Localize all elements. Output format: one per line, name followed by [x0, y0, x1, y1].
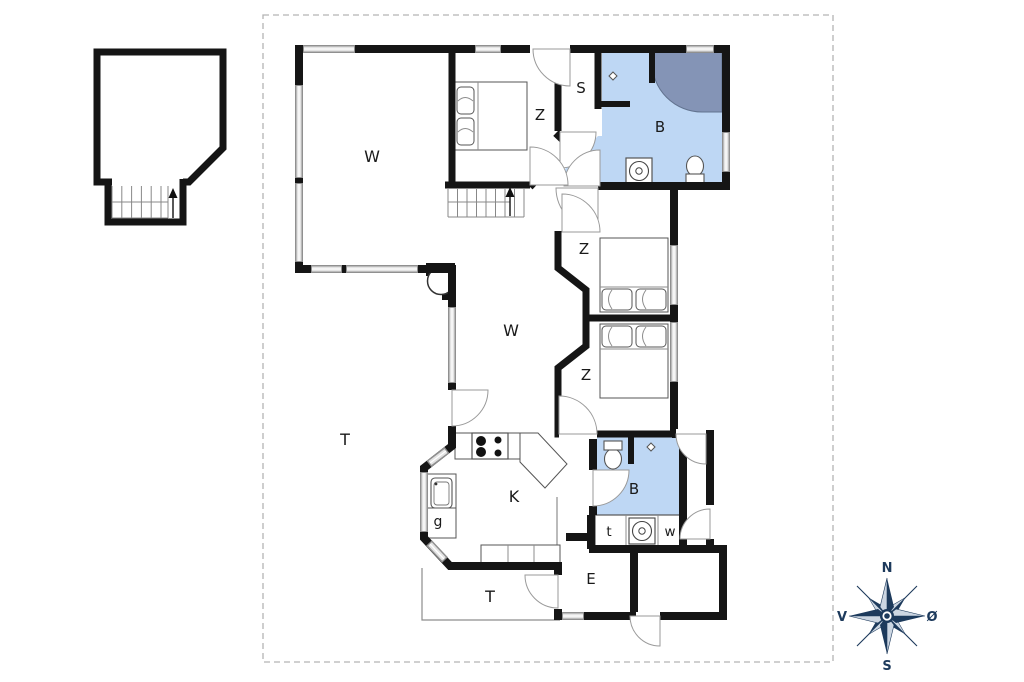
- label-bedroom-middle: Z: [579, 240, 589, 258]
- main-stairs: [448, 187, 524, 217]
- door-bedroom-lower: [559, 396, 597, 434]
- door-top-entrance: [533, 49, 570, 86]
- label-terrace-west: T: [339, 430, 350, 449]
- label-entry: E: [586, 570, 595, 588]
- label-room-w: w: [664, 524, 675, 540]
- label-terrace-south: T: [484, 587, 495, 606]
- label-living-room: W: [364, 147, 380, 166]
- floor-plan: W Z S B Z W Z T K g B t w E T: [0, 0, 1024, 682]
- door-living-west: [452, 390, 488, 426]
- label-room-t: t: [606, 524, 611, 540]
- kitchen-counter-corner: [520, 433, 567, 488]
- label-kitchen: K: [509, 487, 520, 506]
- label-bedroom-lower: Z: [581, 366, 591, 384]
- stairwell-wall: [445, 175, 541, 187]
- entry-walls: [558, 562, 634, 616]
- storage-room-walls: [634, 549, 723, 616]
- door-entry: [525, 575, 558, 608]
- compass-south-label: S: [882, 659, 891, 674]
- label-room-s: S: [576, 79, 586, 97]
- label-room-g: g: [434, 514, 443, 530]
- toilet-icon: [686, 156, 704, 183]
- annex-walls: [97, 52, 223, 182]
- label-bathroom-2: B: [629, 480, 639, 498]
- floor-plan-canvas: W Z S B Z W Z T K g B t w E T: [0, 0, 1024, 682]
- bed-icon: [454, 82, 527, 150]
- bed-icon: [600, 324, 668, 398]
- window: [429, 450, 447, 464]
- annex-stair-walls: [108, 179, 183, 222]
- toilet-icon: [604, 441, 622, 469]
- compass-rose-icon: N S V Ø: [837, 561, 938, 674]
- label-bathroom-main: B: [655, 118, 665, 136]
- annex-stairs: [112, 186, 168, 218]
- compass-east-label: Ø: [926, 610, 937, 625]
- washing-machine-icon: [626, 158, 652, 184]
- stairs-up-arrow-icon: [169, 188, 178, 218]
- bed-icon: [600, 238, 668, 312]
- sink-icon: [431, 478, 452, 508]
- label-living-area-2: W: [503, 321, 519, 340]
- stove-icon: [472, 433, 508, 459]
- annex-building: [97, 52, 223, 222]
- compass-north-label: N: [882, 561, 893, 576]
- label-bedroom-top: Z: [535, 106, 545, 124]
- compass-west-label: V: [837, 610, 847, 625]
- door-storage: [630, 616, 660, 646]
